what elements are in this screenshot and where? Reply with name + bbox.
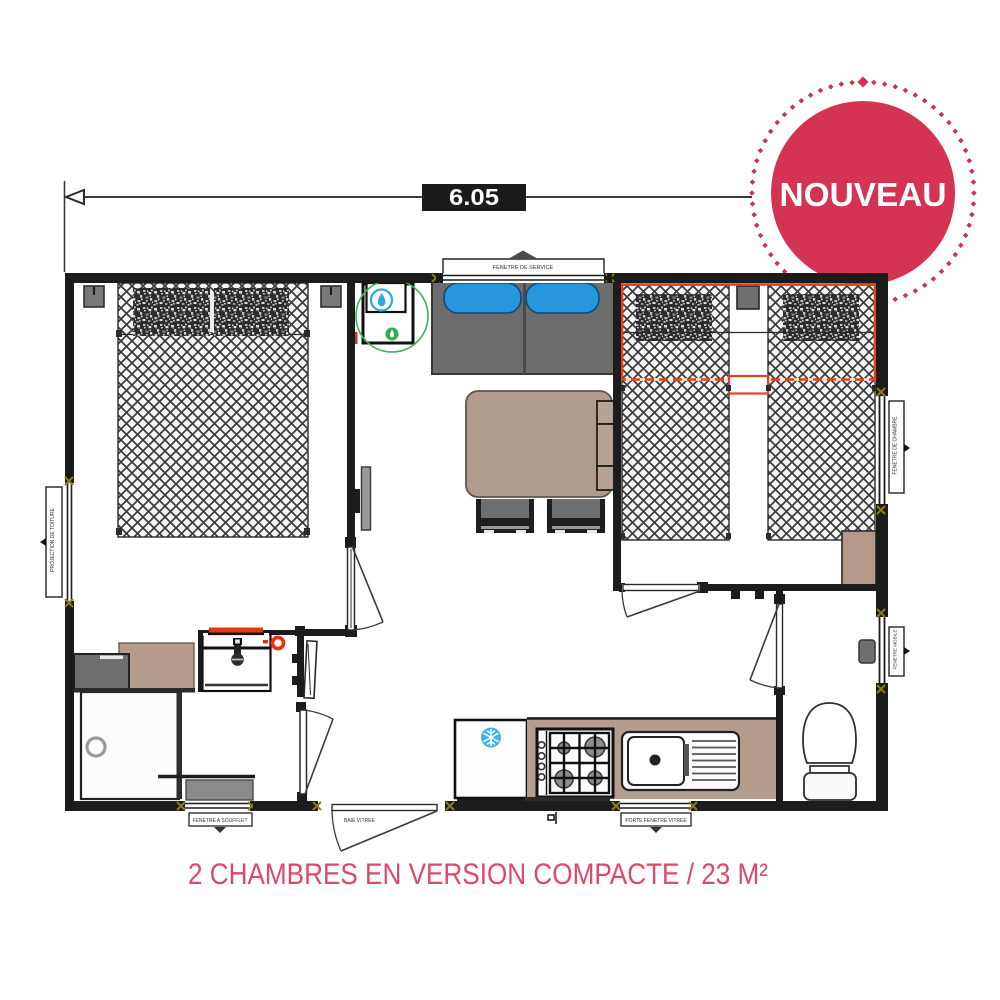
svg-text:FENETRE MOBILE: FENETRE MOBILE [893, 629, 898, 669]
svg-text:FENETRE A SOUFFLET: FENETRE A SOUFFLET [192, 818, 247, 824]
svg-text:PROJECTION DE TOITURE: PROJECTION DE TOITURE [50, 507, 56, 571]
svg-text:BAIE VITREE: BAIE VITREE [344, 818, 376, 824]
svg-text:2 CHAMBRES EN VERSION COMPACTE: 2 CHAMBRES EN VERSION COMPACTE / 23 M² [188, 858, 768, 891]
svg-text:PORTE FENETRE VITREE: PORTE FENETRE VITREE [625, 818, 687, 824]
svg-text:NOUVEAU: NOUVEAU [780, 176, 947, 213]
svg-text:FENETRE DE CHAMBRE: FENETRE DE CHAMBRE [893, 416, 899, 475]
svg-text:6.05: 6.05 [449, 184, 499, 210]
svg-text:FENETRE DE SERVICE: FENETRE DE SERVICE [493, 265, 554, 271]
